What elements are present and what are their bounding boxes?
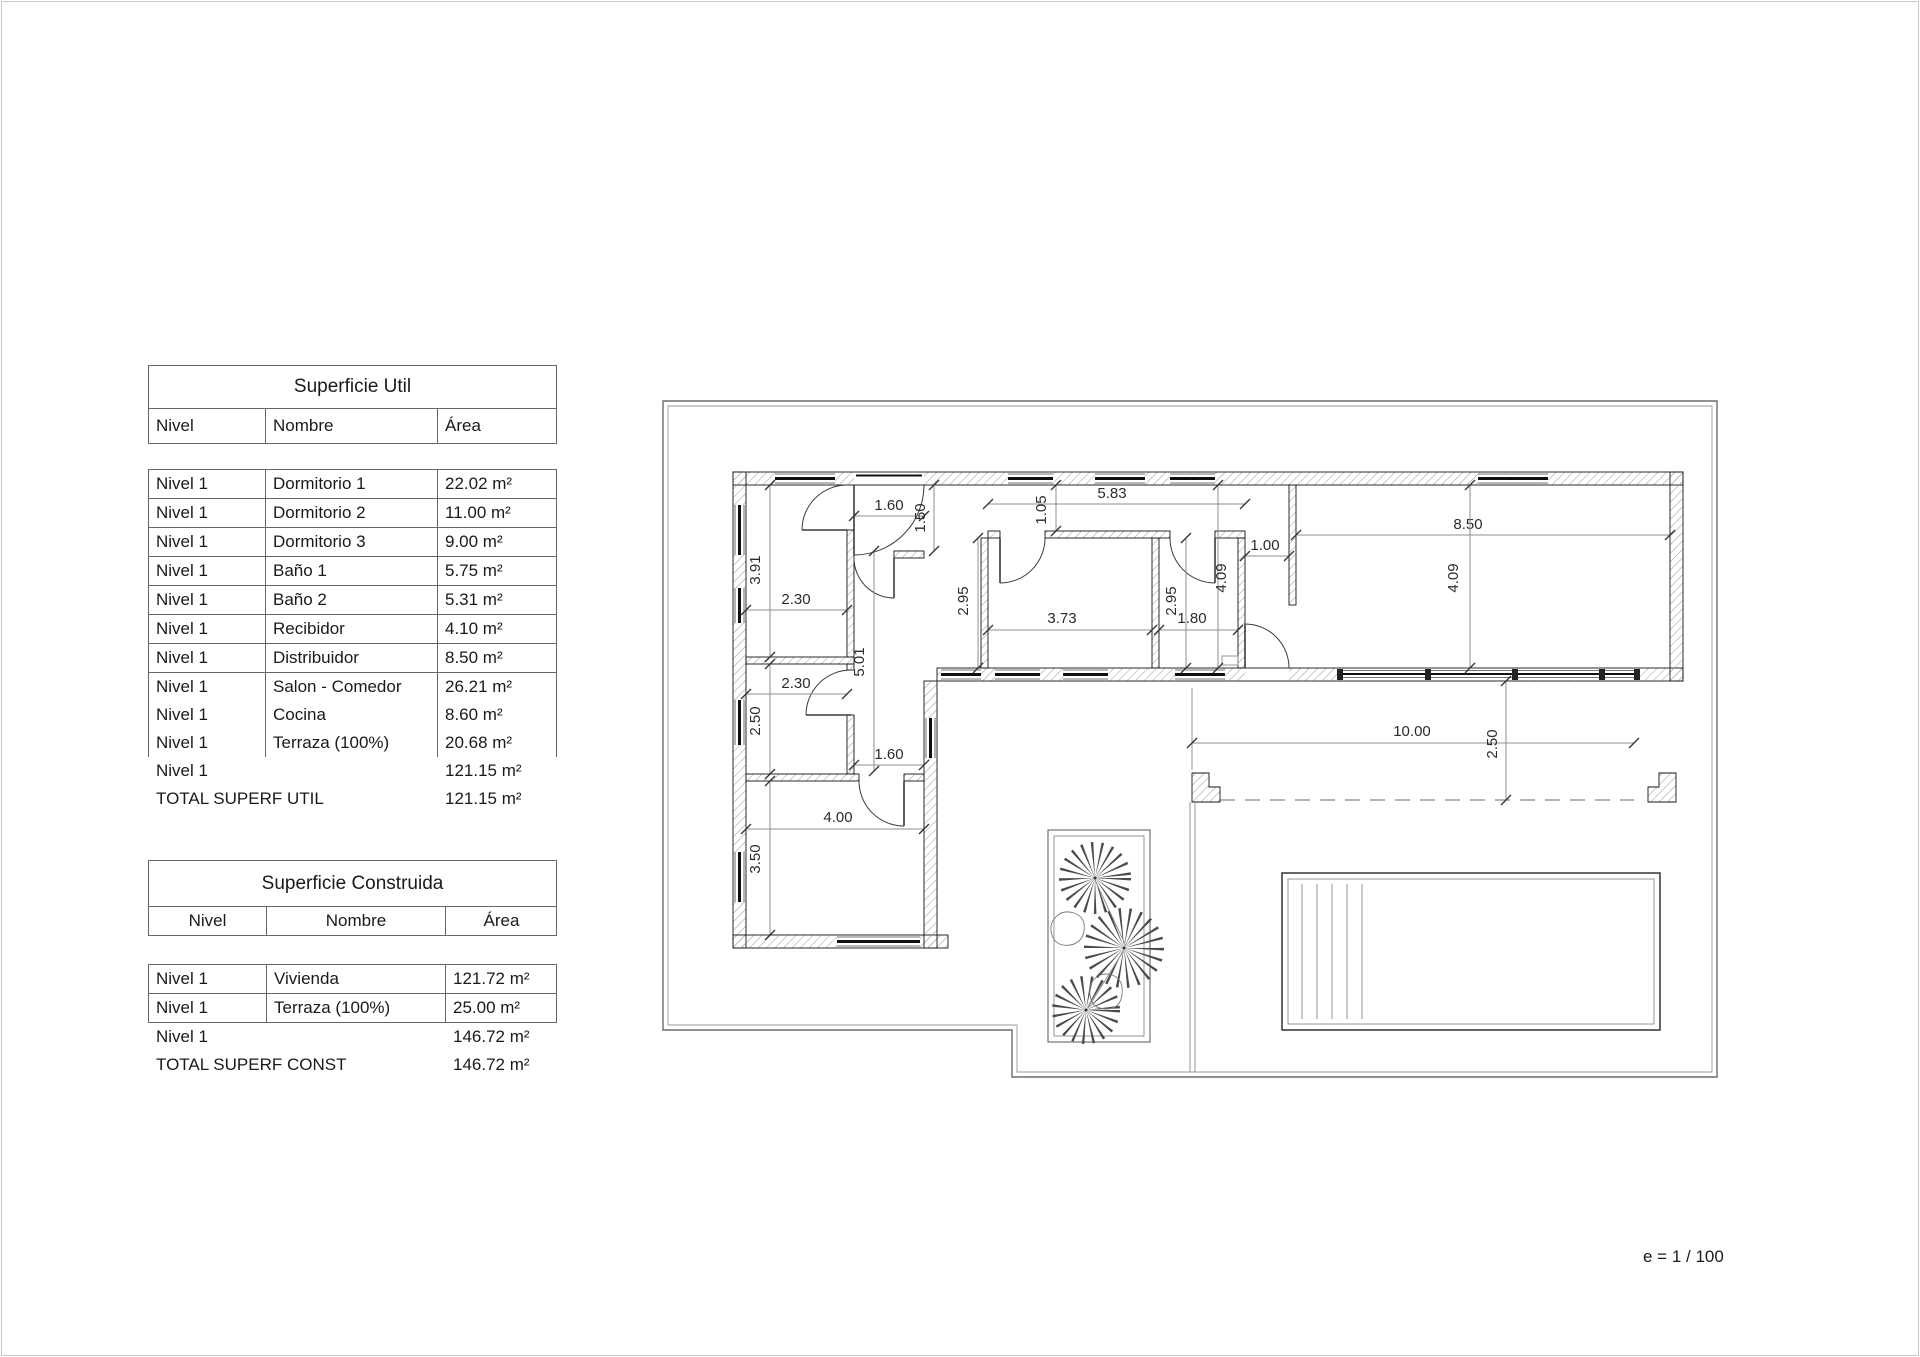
scale-note: e = 1 / 100: [1643, 1247, 1724, 1266]
terrace-step-left: [1192, 773, 1220, 802]
planter-trees: [1051, 860, 1144, 1027]
dimension-label: 1.50: [912, 503, 929, 532]
floor-plan: 1.601.505.831.051.008.504.094.092.953.73…: [0, 0, 1920, 1357]
dimension-label: 2.95: [955, 586, 972, 615]
dimension-label: 3.91: [747, 555, 764, 584]
dimension-label: 2.30: [781, 675, 810, 692]
dimension-label: 1.60: [874, 497, 903, 514]
dimension-label: 2.95: [1163, 586, 1180, 615]
dimension-label: 8.50: [1453, 516, 1482, 533]
dimension-label: 10.00: [1393, 723, 1431, 740]
terrace-step-right: [1648, 773, 1676, 802]
dimension-label: 2.50: [1484, 729, 1501, 758]
dimension-label: 1.80: [1177, 610, 1206, 627]
dimension-label: 4.09: [1213, 563, 1230, 592]
dimension-label: 1.00: [1250, 537, 1279, 554]
dimension-label: 1.05: [1033, 495, 1050, 524]
dimension-label: 4.09: [1445, 563, 1462, 592]
planter: [1048, 830, 1150, 1042]
sliding-glass-door: [1337, 669, 1640, 680]
dimension-label: 2.30: [781, 591, 810, 608]
dimension-annotations: 1.601.505.831.051.008.504.094.092.953.73…: [741, 480, 1675, 940]
swimming-pool: [1282, 873, 1660, 1030]
dimension-label: 2.50: [747, 706, 764, 735]
dimension-label: 1.60: [874, 746, 903, 763]
dimension-label: 5.83: [1097, 485, 1126, 502]
dimension-label: 4.00: [823, 809, 852, 826]
dimension-label: 3.50: [747, 844, 764, 873]
dimension-label: 5.01: [851, 647, 868, 676]
dimension-label: 3.73: [1047, 610, 1076, 627]
